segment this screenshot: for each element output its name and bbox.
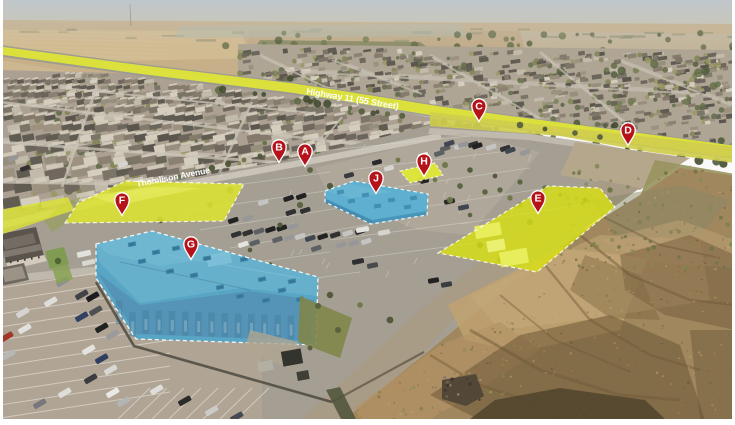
svg-text:H: H [420, 156, 428, 168]
svg-text:D: D [624, 125, 632, 137]
svg-text:E: E [534, 193, 541, 205]
svg-text:J: J [373, 173, 379, 185]
svg-text:C: C [475, 101, 483, 113]
svg-text:G: G [187, 239, 195, 251]
svg-text:F: F [119, 195, 126, 207]
svg-text:A: A [301, 146, 309, 158]
svg-text:B: B [275, 142, 283, 154]
